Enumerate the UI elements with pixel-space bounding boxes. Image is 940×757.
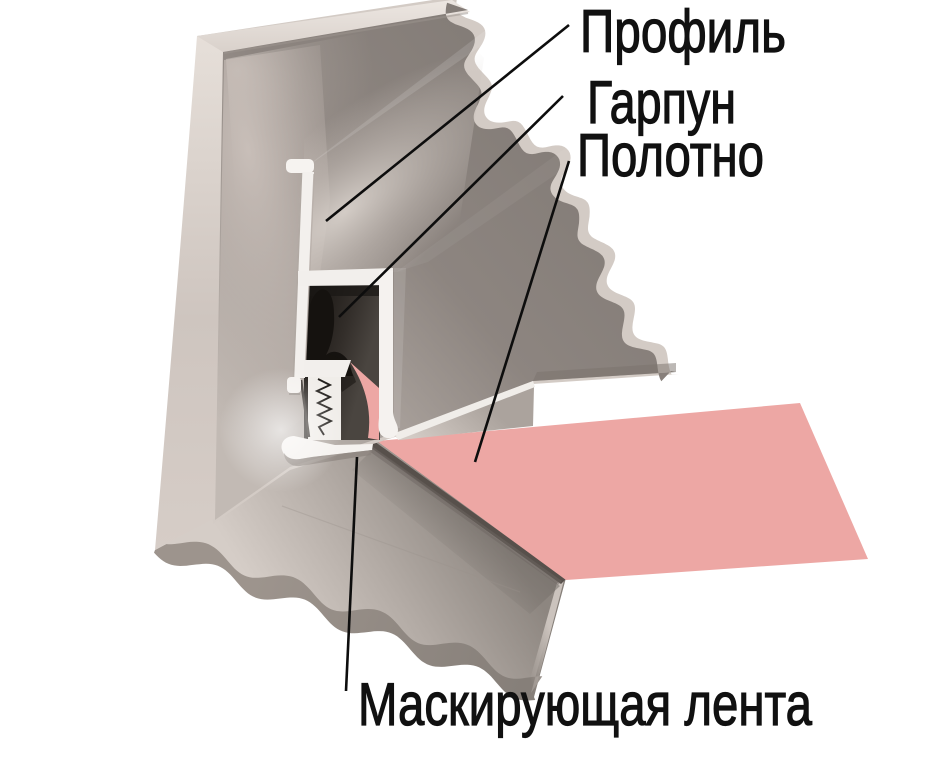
svg-text:Профиль: Профиль — [580, 0, 786, 65]
svg-text:Маскирующая лента: Маскирующая лента — [358, 671, 812, 738]
svg-text:Полотно: Полотно — [577, 122, 764, 189]
